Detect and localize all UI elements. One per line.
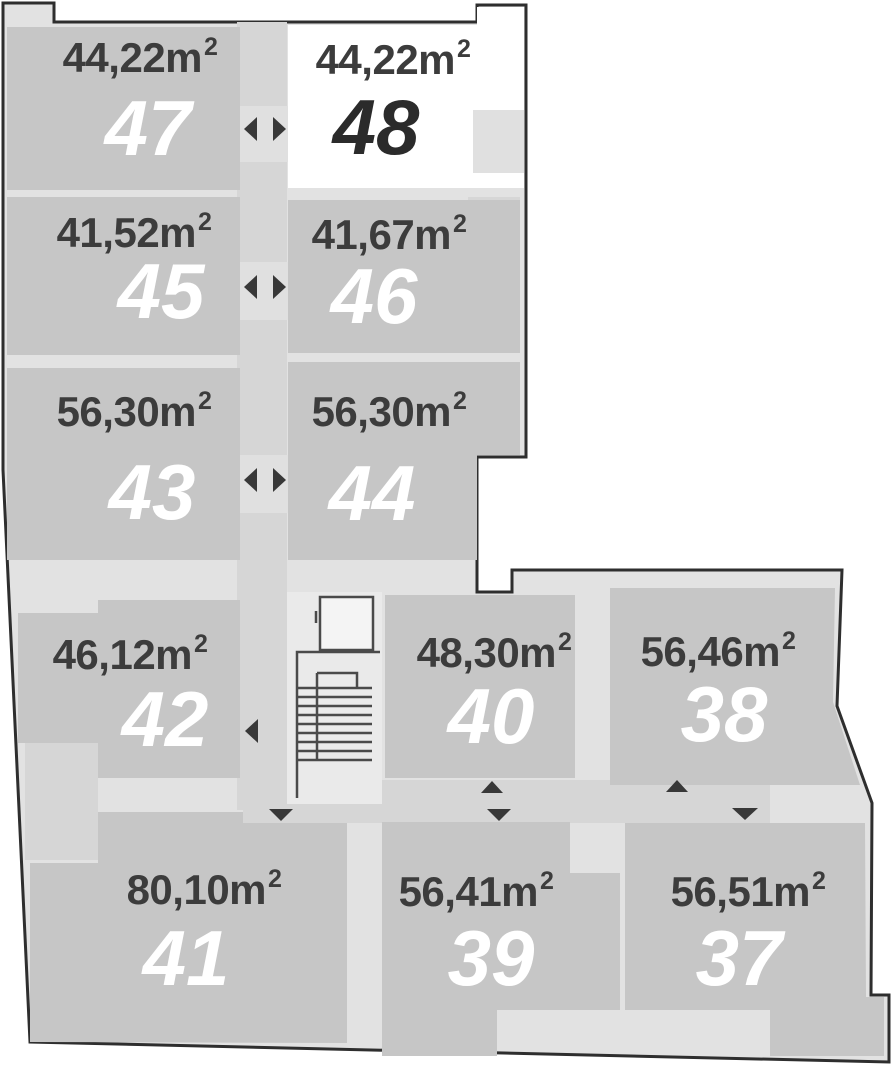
unit-40-region[interactable]: [385, 595, 575, 778]
floor-plan: 44,22m2 47 44,22m2 48 41,52m2 45 41,67m2…: [0, 0, 895, 1069]
unit-48-balcony-patch: [473, 110, 524, 173]
unit-38-region[interactable]: [610, 588, 860, 785]
unit-47-region[interactable]: [7, 27, 240, 190]
unit-46-region[interactable]: [288, 200, 520, 353]
unit-44-region[interactable]: [288, 362, 520, 560]
floor-plan-canvas: [0, 0, 895, 1069]
unit-43-region[interactable]: [7, 368, 240, 560]
unit-45-region[interactable]: [7, 197, 240, 355]
elevator-icon: [316, 597, 373, 650]
balcony-patch: [25, 743, 98, 860]
door-zone: [240, 106, 288, 162]
